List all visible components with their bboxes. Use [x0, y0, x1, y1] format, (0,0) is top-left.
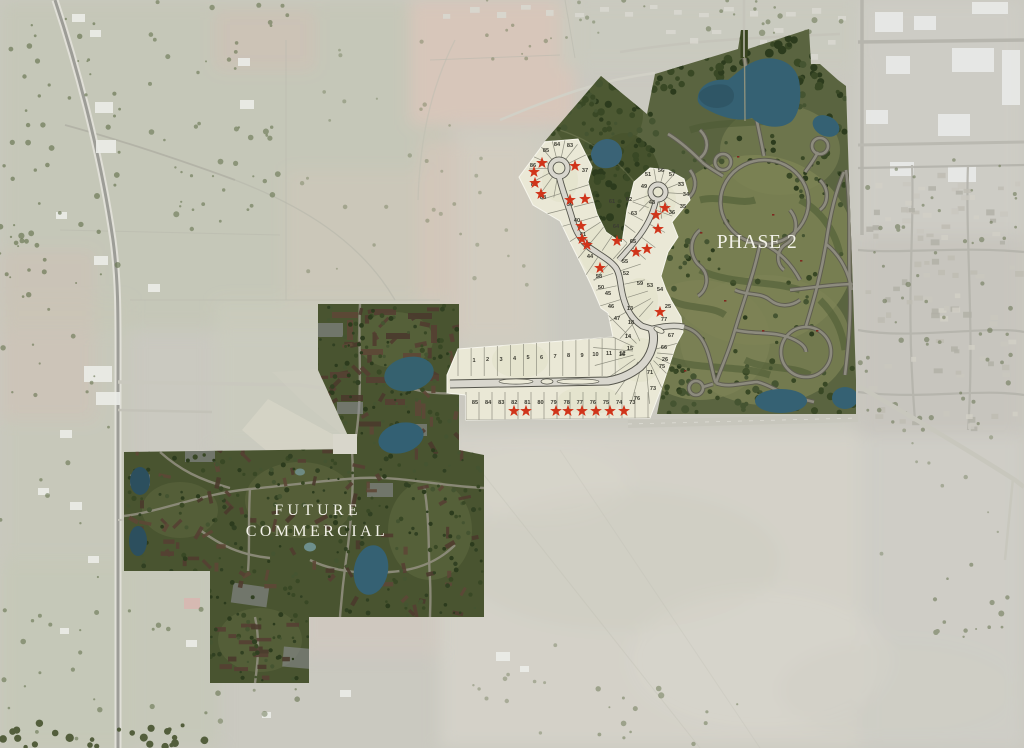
- svg-text:8: 8: [567, 353, 570, 359]
- svg-text:34: 34: [683, 192, 690, 198]
- svg-text:18: 18: [628, 320, 634, 326]
- svg-text:11: 11: [606, 351, 612, 357]
- svg-text:3: 3: [499, 357, 502, 363]
- svg-text:54: 54: [657, 287, 664, 293]
- svg-text:50: 50: [598, 285, 604, 291]
- svg-text:66: 66: [661, 345, 667, 351]
- svg-text:78: 78: [564, 400, 570, 406]
- svg-text:9: 9: [580, 353, 583, 359]
- svg-text:51: 51: [645, 172, 651, 178]
- svg-text:61: 61: [609, 199, 615, 205]
- svg-text:62: 62: [626, 197, 632, 203]
- svg-text:79: 79: [550, 400, 556, 406]
- svg-text:5: 5: [526, 355, 529, 361]
- svg-text:7: 7: [553, 354, 556, 360]
- svg-text:76: 76: [590, 400, 596, 406]
- svg-text:75: 75: [659, 364, 665, 370]
- svg-text:26: 26: [662, 357, 668, 363]
- svg-text:49: 49: [641, 184, 647, 190]
- svg-text:85: 85: [472, 400, 478, 406]
- svg-text:14: 14: [625, 334, 632, 340]
- svg-text:58: 58: [596, 274, 602, 280]
- svg-text:76: 76: [634, 396, 640, 402]
- svg-text:COMMERCIAL: COMMERCIAL: [246, 523, 388, 540]
- svg-text:48: 48: [649, 200, 655, 206]
- svg-text:77: 77: [661, 317, 667, 323]
- svg-text:36: 36: [669, 210, 675, 216]
- svg-text:74: 74: [616, 400, 623, 406]
- svg-text:35: 35: [680, 204, 686, 210]
- svg-text:83: 83: [498, 400, 504, 406]
- svg-text:81: 81: [524, 400, 530, 406]
- svg-text:10: 10: [592, 352, 598, 358]
- svg-text:52: 52: [623, 271, 629, 277]
- svg-text:85: 85: [543, 148, 549, 154]
- svg-text:16: 16: [619, 352, 625, 358]
- svg-text:84: 84: [485, 400, 492, 406]
- svg-text:75: 75: [603, 400, 609, 406]
- svg-text:80: 80: [537, 400, 543, 406]
- svg-text:13: 13: [627, 306, 633, 312]
- svg-text:46: 46: [608, 304, 614, 310]
- svg-text:64: 64: [613, 224, 620, 230]
- svg-text:15: 15: [627, 346, 633, 352]
- svg-text:56: 56: [658, 168, 664, 174]
- svg-text:40: 40: [574, 218, 580, 224]
- svg-text:53: 53: [647, 283, 653, 289]
- svg-text:67: 67: [668, 333, 674, 339]
- svg-text:44: 44: [587, 254, 594, 260]
- svg-text:1: 1: [472, 358, 475, 364]
- svg-text:45: 45: [605, 291, 611, 297]
- svg-text:6: 6: [540, 355, 543, 361]
- svg-text:FUTURE: FUTURE: [274, 502, 361, 519]
- svg-text:37: 37: [582, 168, 588, 174]
- svg-text:33: 33: [678, 182, 684, 188]
- svg-text:57: 57: [669, 172, 675, 178]
- svg-text:47: 47: [614, 316, 620, 322]
- svg-text:71: 71: [647, 370, 653, 376]
- svg-text:25: 25: [665, 304, 671, 310]
- svg-text:83: 83: [567, 143, 573, 149]
- svg-text:73: 73: [650, 386, 656, 392]
- svg-text:2: 2: [486, 357, 489, 363]
- svg-text:59: 59: [637, 281, 643, 287]
- svg-text:86: 86: [530, 163, 536, 169]
- svg-text:82: 82: [511, 400, 517, 406]
- svg-text:55: 55: [622, 259, 628, 265]
- svg-text:84: 84: [554, 142, 561, 148]
- svg-text:63: 63: [631, 211, 637, 217]
- svg-text:PHASE 2: PHASE 2: [717, 232, 798, 253]
- svg-text:65: 65: [630, 239, 636, 245]
